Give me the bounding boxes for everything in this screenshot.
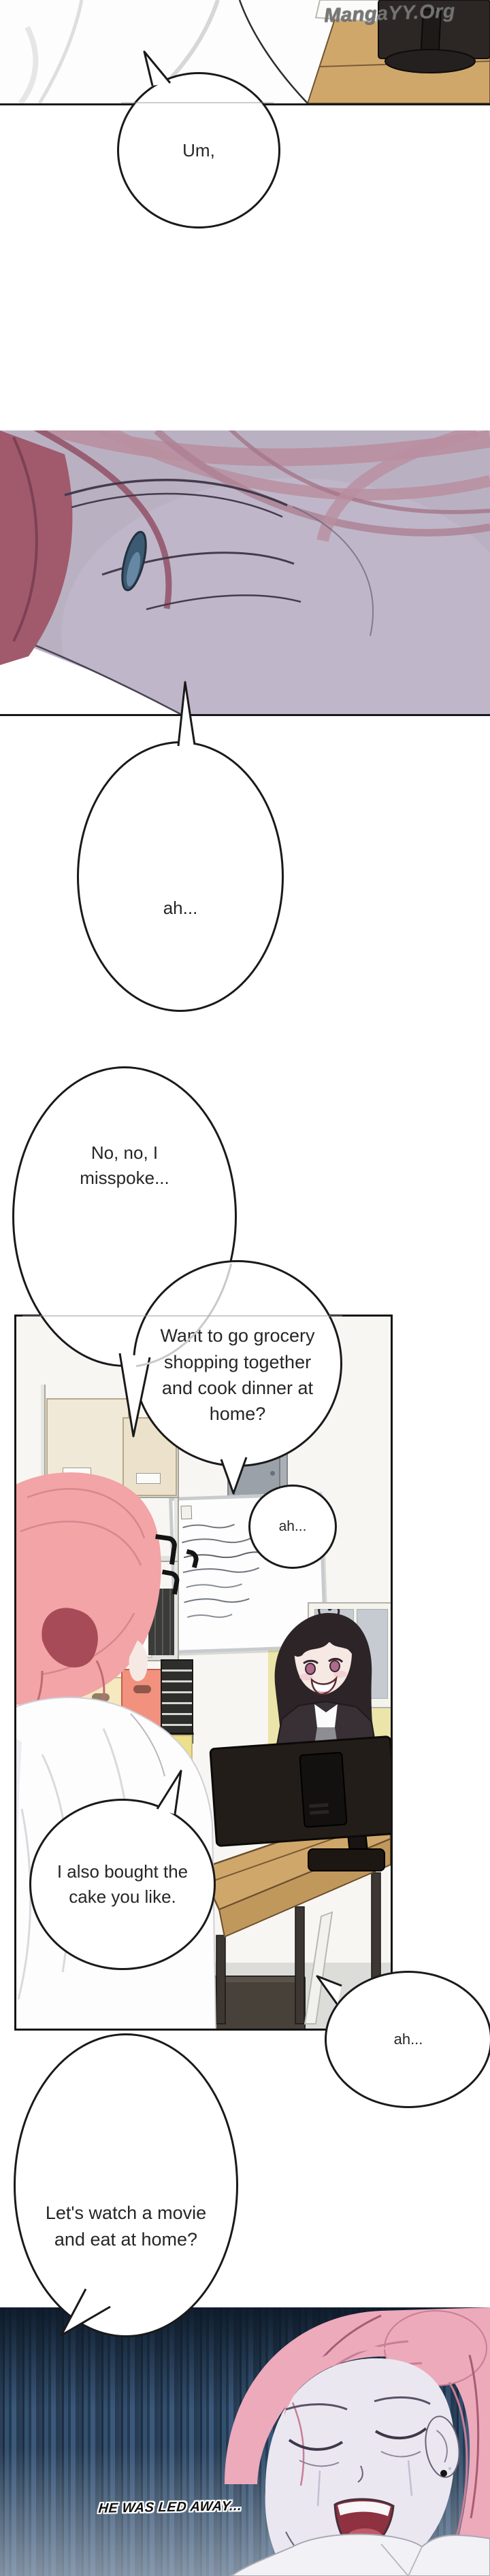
desk-leg (295, 1907, 304, 2024)
panel-border-showthrough (22, 1315, 342, 1317)
eye (306, 1663, 315, 1674)
speech-text: misspoke... (80, 1166, 169, 1191)
panel-night-scene (0, 2307, 490, 2576)
speech-text: ah... (394, 2029, 423, 2050)
ah-reply-2-tail (306, 1969, 350, 2013)
speech-text: Let's watch a movie (46, 2200, 206, 2226)
speech-text: ah... (163, 896, 198, 921)
panel-face-closeup (0, 430, 490, 716)
cake-bubble-tail (151, 1765, 189, 1821)
movie-bubble-tail (48, 2282, 116, 2341)
panel-border-showthrough (121, 102, 274, 103)
cabinet-knob-icon (270, 1471, 275, 1476)
speech-text: No, no, I (91, 1140, 158, 1166)
monitor-back-panel (299, 1752, 347, 1828)
speech-bubble-um: Um, (117, 72, 280, 228)
monitor-base (385, 50, 475, 73)
um-bubble-tail (131, 48, 179, 90)
speech-text: ah... (279, 1516, 307, 1537)
webtoon-page: MangaYY.Org Um, (0, 0, 490, 2576)
monitor-stand-base (308, 1848, 385, 1871)
speech-text: I also bought the (57, 1859, 188, 1884)
speech-bubble-ah: ah... (77, 741, 284, 1012)
narration-caption: HE WAS LED AWAY... (84, 2498, 256, 2517)
confusion-marks-icon (152, 1534, 178, 1565)
speech-text: cake you like. (69, 1884, 176, 1910)
deny-bubble-showthrough-arc (133, 1260, 342, 1467)
monitor-back (209, 1735, 393, 1847)
speech-bubble-ah-reply: ah... (248, 1485, 337, 1569)
grocery-bubble-tail (212, 1453, 256, 1497)
face-closeup-art (0, 430, 490, 714)
speech-text: and eat at home? (54, 2226, 197, 2252)
eye (330, 1661, 340, 1672)
speech-text: Um, (182, 138, 215, 163)
speech-bubble-cake: I also bought the cake you like. (29, 1799, 216, 1970)
ah-bubble-tail (171, 679, 201, 749)
